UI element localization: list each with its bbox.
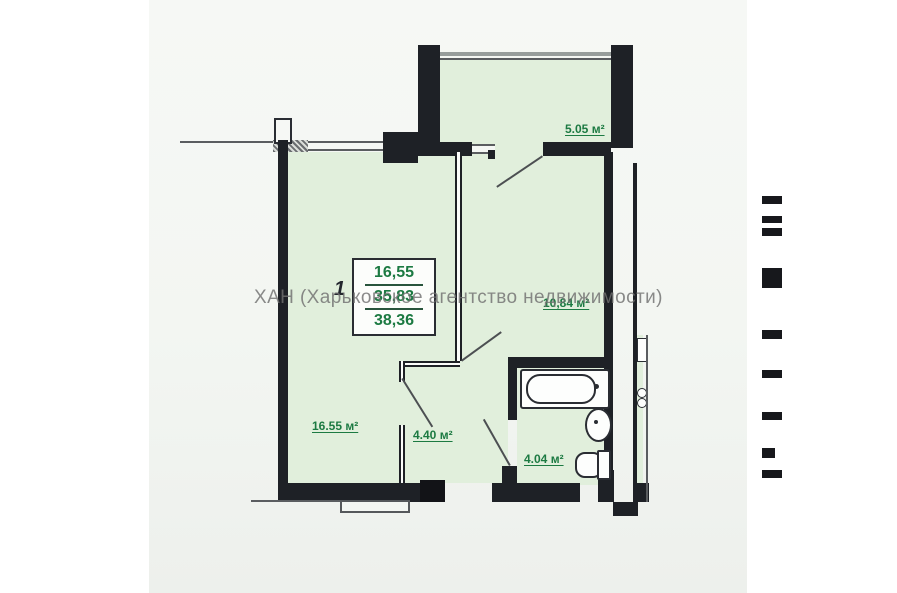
balcony-area-label: 5.05 м² xyxy=(565,122,605,136)
bathroom-top-wall xyxy=(508,357,610,368)
bathtub-inner xyxy=(526,374,596,404)
living-kitchen-wall xyxy=(455,152,462,361)
vent-shaft-band xyxy=(762,412,782,420)
kitchen-area xyxy=(462,152,608,361)
living-window-outer-line xyxy=(308,141,383,143)
sink xyxy=(585,408,612,442)
sink-drain xyxy=(594,420,598,424)
vent-shaft-band xyxy=(762,196,782,204)
balcony-glazing-band xyxy=(440,52,611,56)
stamp-living-area: 16,55 xyxy=(365,262,423,286)
mid-wall-pier xyxy=(383,132,418,163)
living-window-inner-line xyxy=(308,149,383,151)
hallway-area-label: 4.40 м² xyxy=(413,428,453,442)
hallway-left-wall-lower xyxy=(399,425,405,483)
bottom-wall-right xyxy=(492,483,580,502)
vent-shaft-band xyxy=(762,370,782,378)
kitchen-top-wall-right xyxy=(543,142,611,156)
shaft-right-wall xyxy=(633,163,637,502)
hallway-area xyxy=(398,361,508,483)
vent-shaft-band xyxy=(762,470,782,478)
toilet-tank xyxy=(597,450,611,480)
balcony-right-pier xyxy=(611,45,633,148)
vent-shaft-band xyxy=(762,268,782,288)
agency-watermark: ХАН (Харьковское агентство недвижимости) xyxy=(254,287,663,309)
kitchen-top-wall-left xyxy=(418,142,472,156)
stamp-total-area: 38,36 xyxy=(365,310,423,332)
living-room-area-label: 16.55 м² xyxy=(312,419,358,433)
bathtub-drain xyxy=(594,384,599,389)
kitchen-window-outer-line xyxy=(472,144,495,146)
corridor-line xyxy=(251,500,340,502)
vent-shaft-band xyxy=(762,448,775,458)
vent-shaft-band xyxy=(762,216,782,223)
corridor-step-outline xyxy=(340,500,410,513)
neighbor-wall-line xyxy=(180,141,273,143)
vent-shaft-band xyxy=(762,228,782,236)
entrance-door-block xyxy=(420,480,445,502)
hallway-top-wall xyxy=(399,361,460,367)
bathroom-left-wall xyxy=(508,368,517,420)
living-left-wall xyxy=(278,140,288,502)
neighbor-edge-line xyxy=(646,335,648,502)
bathroom-corner-jog xyxy=(502,466,517,485)
shaft-bottom-block xyxy=(613,502,638,516)
bathroom-area-label: 4.04 м² xyxy=(524,452,564,466)
balcony-glazing-line xyxy=(440,58,611,60)
vent-shaft-band xyxy=(762,330,782,339)
balcony-left-pier xyxy=(418,45,440,148)
kitchen-window-end-cap xyxy=(488,150,495,159)
floor-plan-page: 5.05 м² 10,84 м² 16.55 м² 4.40 м² 4.04 м… xyxy=(0,0,897,593)
